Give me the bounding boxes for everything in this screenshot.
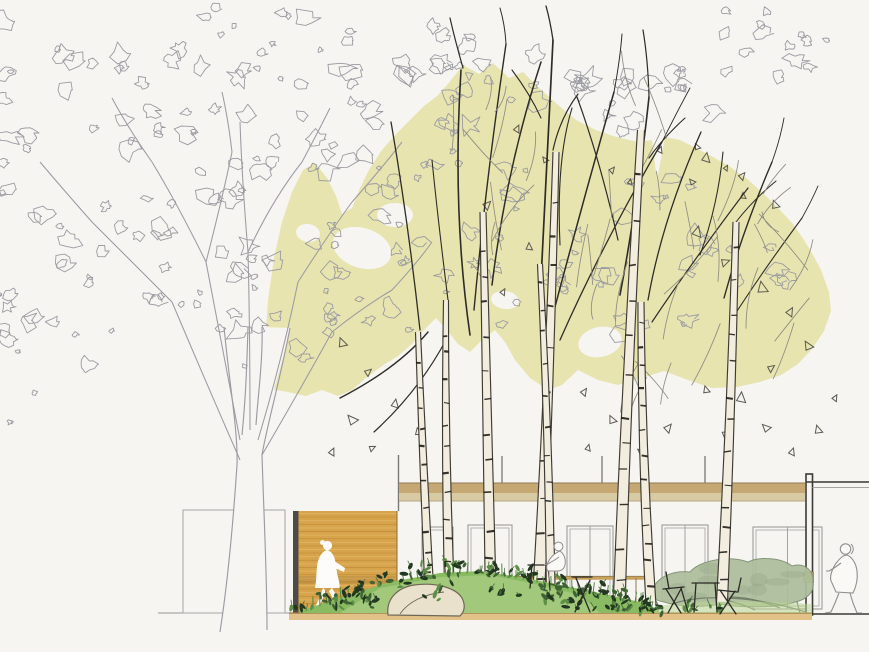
birch-lenticel (482, 277, 488, 278)
interior-tree-texture (765, 578, 790, 586)
silhouette-hair (320, 540, 325, 545)
birch-lenticel (545, 501, 551, 502)
fascia-beam-bottom (399, 493, 805, 501)
wall-shadow-band (299, 576, 398, 584)
birch-lenticel (617, 580, 626, 581)
wall-edge-dark (293, 511, 299, 613)
birch-lenticel (420, 428, 425, 429)
birch-lenticel (726, 398, 733, 399)
birch-lenticel (419, 446, 425, 447)
birch-lenticel (485, 459, 492, 460)
birch-lenticel (483, 435, 490, 436)
birch-lenticel (444, 351, 449, 352)
birch-lenticel (487, 531, 495, 532)
birch-lenticel (729, 334, 735, 335)
birch-lenticel (536, 533, 545, 534)
birch-lenticel (725, 485, 733, 486)
birch-lenticel (615, 549, 624, 550)
birch-lenticel (443, 336, 448, 337)
birch-lenticel (640, 405, 646, 406)
birch-lenticel (621, 418, 629, 419)
birch-lenticel (541, 310, 546, 311)
birch-lenticel (443, 519, 450, 520)
birch-lenticel (418, 408, 423, 409)
birch-lenticel (547, 305, 554, 306)
birch-lenticel (442, 473, 448, 474)
birch-lenticel (731, 280, 737, 281)
birch-lenticel (422, 464, 428, 465)
birch-lenticel (634, 221, 641, 222)
birch-lenticel (485, 558, 493, 559)
birch-lenticel (622, 443, 630, 444)
walker-head (840, 544, 850, 554)
birch-lenticel (640, 479, 647, 480)
interior-tree-texture (750, 573, 768, 587)
canopy-gap (377, 203, 413, 227)
birch-lenticel (730, 360, 736, 361)
birch-lenticel (444, 446, 450, 447)
birch-lenticel (442, 425, 448, 426)
birch-lenticel (481, 301, 487, 302)
birch-lenticel (538, 282, 542, 283)
birch-lenticel (719, 552, 727, 553)
birch-lenticel (629, 265, 636, 266)
birch-lenticel (545, 427, 551, 428)
birch-lenticel (723, 527, 731, 528)
birch-lenticel (419, 388, 424, 389)
birch-lenticel (642, 455, 649, 456)
birch-lenticel (422, 532, 429, 533)
birch-lenticel (480, 251, 485, 252)
seated-figure-head (554, 542, 563, 551)
birch-lenticel (734, 247, 739, 248)
birch-lenticel (483, 337, 489, 338)
birch-lenticel (547, 348, 554, 349)
birch-lenticel (643, 560, 651, 561)
birch-lenticel (484, 398, 491, 399)
interior-tree-texture (780, 571, 805, 578)
fascia-beam-top (399, 483, 805, 493)
section-elevation-svg (0, 0, 869, 652)
drawing-canvas (0, 0, 869, 652)
birch-lenticel (542, 396, 547, 397)
birch-lenticel (638, 347, 643, 348)
birch-lenticel (425, 552, 432, 553)
birch-lenticel (635, 174, 641, 175)
birch-lenticel (647, 586, 655, 587)
ground-strip (289, 613, 812, 620)
